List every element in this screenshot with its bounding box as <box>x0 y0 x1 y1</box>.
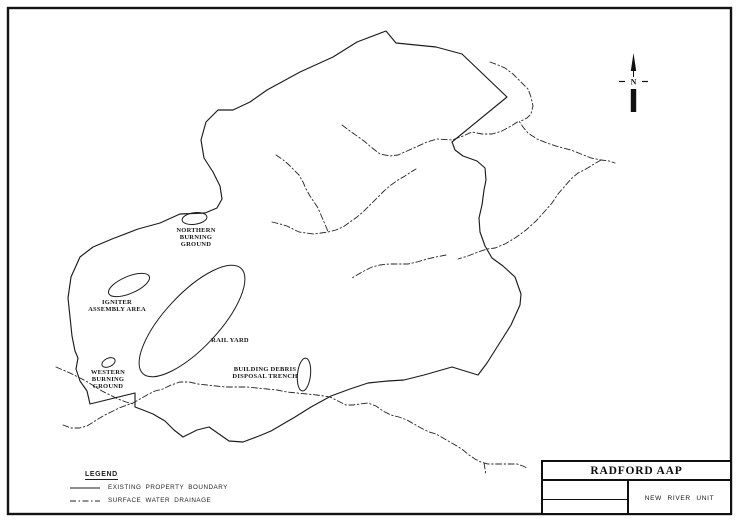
label-western-burning-ground: WESTERN BURNING GROUND <box>91 369 125 390</box>
drainage-southern-tick <box>484 463 486 475</box>
label-line: BURNING <box>91 376 125 383</box>
solid-line-sample-icon <box>70 486 100 490</box>
western-burning-ground-ellipse <box>100 356 116 370</box>
label-line: NORTHERN <box>176 227 215 234</box>
drainage-southern-main <box>63 382 527 468</box>
drainage-center-branch <box>276 155 328 233</box>
igniter-assembly-area-ellipse <box>105 269 152 302</box>
label-line: BUILDING DEBRIS <box>232 366 297 373</box>
label-igniter-assembly-area: IGNITER ASSEMBLY AREA <box>88 299 146 313</box>
label-northern-burning-ground: NORTHERN BURNING GROUND <box>176 227 215 248</box>
drainage-northeast-branch <box>490 62 533 121</box>
legend-row-boundary: EXISTING PROPERTY BOUNDARY <box>68 481 228 494</box>
drainage-center-crossing <box>272 169 416 234</box>
legend-row-drainage: SURFACE WATER DRAINAGE <box>68 494 228 507</box>
legend: LEGEND EXISTING PROPERTY BOUNDARY SURFAC… <box>68 463 228 507</box>
north-arrow-bar <box>631 89 636 112</box>
label-line: ASSEMBLY AREA <box>88 306 146 313</box>
map-subtitle: NEW RIVER UNIT <box>629 481 730 515</box>
label-line: IGNITER <box>88 299 146 306</box>
label-line: DISPOSAL TRENCH <box>232 373 297 380</box>
drainage-mid-west-branch <box>352 255 446 278</box>
drainage-upper-main <box>342 121 615 163</box>
label-line: RAIL YARD <box>211 337 249 344</box>
label-line: GROUND <box>91 383 125 390</box>
label-line: BURNING <box>176 234 215 241</box>
title-block-empty-cell <box>543 500 627 515</box>
north-letter: N <box>631 78 637 87</box>
north-arrow-icon: N <box>613 48 655 120</box>
legend-heading: LEGEND <box>85 471 118 480</box>
label-line: WESTERN <box>91 369 125 376</box>
title-block-body: NEW RIVER UNIT <box>543 481 730 515</box>
surface-water-drainage-lines <box>56 62 615 475</box>
north-arrow: N <box>613 48 655 125</box>
title-block: RADFORD AAP NEW RIVER UNIT <box>541 460 732 515</box>
map-title: RADFORD AAP <box>543 462 730 481</box>
dash-dot-line-sample-icon <box>70 499 100 503</box>
building-debris-disposal-trench-ellipse <box>296 357 312 391</box>
title-block-left-cells <box>543 481 629 515</box>
label-rail-yard: RAIL YARD <box>211 337 249 344</box>
label-line: GROUND <box>176 241 215 248</box>
legend-label: SURFACE WATER DRAINAGE <box>108 497 211 504</box>
map-sheet: NORTHERN BURNING GROUND IGNITER ASSEMBLY… <box>0 0 738 528</box>
property-boundary-outline <box>68 31 521 442</box>
north-arrow-head <box>631 53 636 71</box>
legend-label: EXISTING PROPERTY BOUNDARY <box>108 484 228 491</box>
drainage-southeast-branch <box>458 160 601 259</box>
title-block-empty-cell <box>543 481 627 500</box>
label-building-debris-disposal-trench: BUILDING DEBRIS DISPOSAL TRENCH <box>232 366 297 380</box>
